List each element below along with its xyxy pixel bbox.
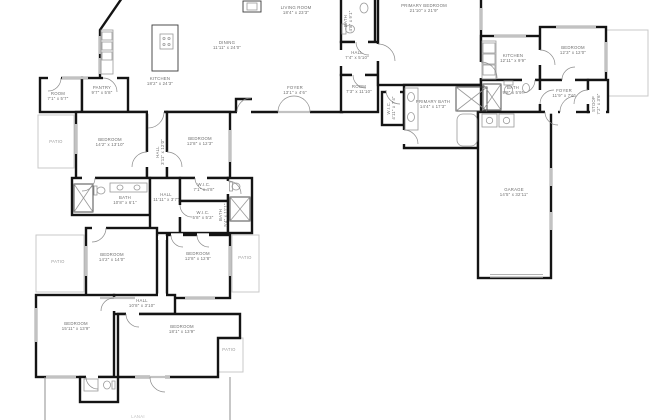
patio-label-mid-left: PATIO — [51, 259, 65, 264]
bedroom-e-walls — [36, 295, 114, 377]
hall-low-walls — [150, 178, 180, 233]
room-label-stoop: STOOP7'2" x 3'6" — [591, 93, 601, 114]
room-label-guest-bedroom: BEDROOM12'3" x 12'0" — [560, 45, 586, 55]
kitchen-island — [152, 25, 178, 71]
room-label-bedroom-a: BEDROOM14'2" x 13'10" — [96, 137, 125, 147]
patio-label-lower-right: PATIO — [222, 347, 236, 352]
patio-label-mid-right: PATIO — [238, 255, 252, 260]
room-label-pantry: PANTRY9'7" x 5'8" — [92, 85, 113, 95]
patio-mid-right — [232, 235, 259, 292]
room-label-bedroom-b: BEDROOM12'8" x 12'3" — [187, 136, 213, 146]
room-label-living-room: LIVING ROOM18'4" x 23'3" — [281, 5, 312, 15]
patio-lower-right — [218, 338, 243, 372]
porch-outline — [606, 30, 648, 96]
room-label-bedroom-d: BEDROOM12'8" x 12'8" — [185, 251, 211, 261]
room-label-bedroom-c: BEDROOM14'2" x 14'0" — [99, 252, 125, 262]
room-label-guest-kitchen: KITCHEN12'11" x 9'9" — [500, 53, 526, 63]
room-label-bedroom-e: BEDROOM15'11" x 13'9" — [62, 321, 91, 331]
room-label-bedroom-f: BEDROOM18'1" x 13'9" — [169, 324, 195, 334]
cooktop — [160, 34, 173, 49]
patio-label-upper-left: PATIO — [49, 139, 63, 144]
room-label-foyer: FOYER13'1" x 4'6" — [283, 85, 307, 95]
room-label-dining: DINING11'11" x 24'0" — [213, 40, 241, 50]
lanai-label: LANAI — [131, 414, 145, 419]
bedroom-d-walls — [167, 235, 230, 298]
room-label-kitchen: KITCHEN18'2" x 24'3" — [147, 76, 173, 86]
bedroom-c-walls — [86, 228, 157, 298]
floor-plan: LIVING ROOM18'4" x 23'3" DINING11'11" x … — [0, 0, 650, 420]
room-label-primary-bath: PRIMARY BATH14'4" x 17'3" — [416, 99, 450, 109]
